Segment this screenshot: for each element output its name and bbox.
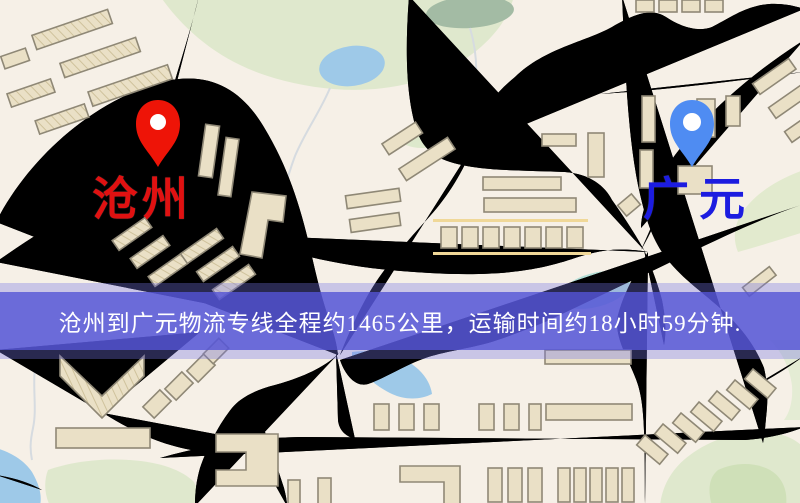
- map-viewport: 沧州 广元 沧州到广元物流专线全程约1465公里，运输时间约18小时59分钟.: [0, 0, 800, 503]
- map-canvas[interactable]: [0, 0, 800, 503]
- route-info-text: 沧州到广元物流专线全程约1465公里，运输时间约18小时59分钟.: [59, 304, 742, 338]
- route-info-banner: 沧州到广元物流专线全程约1465公里，运输时间约18小时59分钟.: [0, 292, 800, 350]
- destination-city-label: 广元: [643, 177, 755, 223]
- origin-city-label: 沧州: [92, 177, 192, 223]
